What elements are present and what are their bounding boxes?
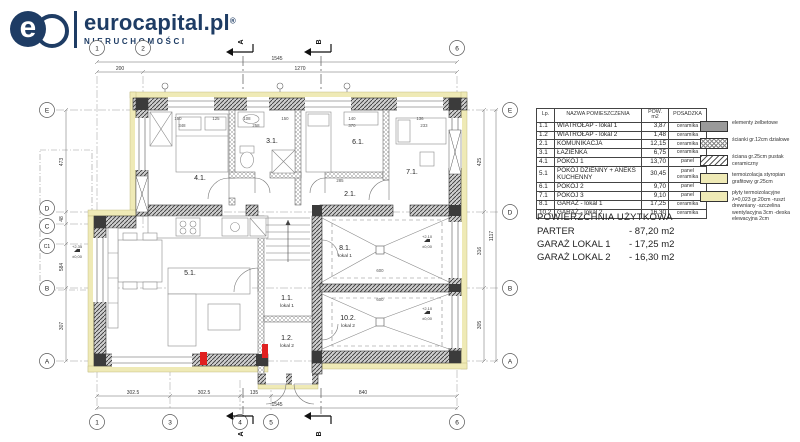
svg-text:1545: 1545 [271,402,282,408]
room-schedule-table: Lp. NAZWA POMIESZCZENIA POW. m2 POSADZKA… [536,108,707,219]
area-summary: POWIERZCHNIA UŻYTKOWA PARTER - 87,20 m2 … [537,212,737,265]
table-row: 2.1 KOMUNIKACJA 12,15 ceramika [537,140,707,149]
svg-text:473: 473 [59,158,65,167]
room-sub-1-2: lokal 2 [280,343,294,349]
svg-text:140: 140 [348,116,356,121]
table-row: 5.1 POKÓJ DZIENNY + ANEKS KUCHENNY 30,45… [537,167,707,183]
svg-text:A: A [238,431,245,436]
svg-text:±0,00: ±0,00 [72,254,83,259]
svg-text:+2,35: +2,35 [72,244,83,249]
room-label-5-1: 5.1. [184,270,196,277]
svg-text:1: 1 [95,420,99,427]
svg-text:1545: 1545 [271,56,282,62]
legend-item: elementy żelbetowe [700,120,798,132]
table-row: 1.1 WIATROŁAP - lokal 1 3,87 ceramika [537,122,707,131]
room-label-10-2: 10.2. [340,315,356,322]
table-row: 8.1 GARAŻ - lokal 1 17,25 ceramika [537,200,707,209]
svg-text:±0,00: ±0,00 [422,316,433,321]
svg-text:425: 425 [477,158,483,167]
svg-text:200: 200 [116,66,125,72]
table-row: 3.1 ŁAZIENKA 6,75 ceramika [537,149,707,158]
svg-text:150: 150 [174,116,182,121]
col-header-lp: Lp. [537,109,555,123]
svg-text:±0,00: ±0,00 [422,244,433,249]
legend-item: ściana gr.25cm pustak ceramiczny [700,154,798,167]
brick-wall-swatch-icon [700,155,728,166]
svg-text:B: B [316,39,323,44]
svg-text:B: B [508,286,512,293]
concrete-swatch-icon [700,121,728,132]
insulation-swatch-icon [700,173,728,184]
svg-text:348: 348 [178,123,186,128]
summary-line: GARAŻ LOKAL 2 - 16,30 m2 [537,252,737,263]
svg-text:1: 1 [95,46,99,53]
svg-text:D: D [45,206,50,213]
svg-text:1270: 1270 [294,66,305,72]
svg-text:125: 125 [212,116,220,121]
svg-text:316: 316 [477,247,483,256]
table-row: 4.1 POKÓJ 1 13,70 panel [537,158,707,167]
insulation-boards-swatch-icon [700,191,728,202]
svg-text:+2,10: +2,10 [422,234,433,239]
svg-text:2: 2 [141,46,145,53]
svg-text:6: 6 [455,46,459,53]
svg-text:136: 136 [416,116,424,121]
svg-text:C: C [45,224,50,231]
svg-text:305: 305 [477,321,483,330]
svg-text:B: B [316,431,323,436]
svg-text:A: A [508,359,513,366]
svg-text:1117: 1117 [489,231,495,242]
furniture [108,112,446,346]
room-label-7-1: 7.1. [406,169,418,176]
svg-text:600: 600 [376,268,384,273]
svg-text:285: 285 [336,178,344,183]
room-label-8-1: 8.1. [339,245,351,252]
vent-markers [162,83,350,92]
svg-text:4: 4 [238,420,242,427]
svg-text:840: 840 [359,390,368,396]
svg-text:6: 6 [455,420,459,427]
table-row: 1.2 WIATROŁAP - lokal 2 1,48 ceramika [537,131,707,140]
svg-text:302.5: 302.5 [198,390,211,396]
svg-text:584: 584 [59,263,65,272]
room-sub-8-1: lokal 1 [338,253,352,259]
room-label-6-1: 6.1. [352,139,364,146]
svg-text:C1: C1 [44,244,51,250]
svg-text:3: 3 [168,420,172,427]
svg-text:108: 108 [243,116,251,121]
table-header-row: Lp. NAZWA POMIESZCZENIA POW. m2 POSADZKA [537,109,707,123]
svg-text:+2,10: +2,10 [422,306,433,311]
svg-text:48: 48 [59,216,65,222]
svg-text:D: D [508,210,513,217]
svg-text:150: 150 [281,116,289,121]
floor-plan-drawing: 4.1. 3.1. 6.1. 7.1. 2.1. 5.1. 8.1. lokal… [0,0,535,442]
table-row: 6.1 POKÓJ 2 9,70 panel [537,183,707,192]
svg-text:B: B [45,286,49,293]
partition-swatch-icon [700,138,728,149]
svg-text:600: 600 [376,297,384,302]
room-label-4-1: 4.1. [194,175,206,182]
room-sub-10-2: lokal 2 [341,323,355,329]
room-label-2-1: 2.1. [344,191,356,198]
svg-text:370: 370 [348,123,356,128]
svg-text:A: A [238,39,245,44]
col-header-name: NAZWA POMIESZCZENIA [555,109,642,123]
page: e eurocapital.pl® NIERUCHOMOŚCI [0,0,800,442]
legend-item: termoizolacja styropian grafitowy gr.25c… [700,172,798,185]
room-label-1-1: 1.1. [281,295,293,302]
room-label-1-2: 1.2. [281,335,293,342]
col-header-area: POW. m2 [642,109,669,123]
summary-title: POWIERZCHNIA UŻYTKOWA [537,212,737,223]
legend-item: ścianki gr.12cm działowe [700,137,798,149]
room-sub-1-1: lokal 1 [280,303,294,309]
room-label-3-1: 3.1. [266,138,278,145]
svg-text:5: 5 [269,420,273,427]
svg-text:135: 135 [250,390,259,396]
summary-line: PARTER - 87,20 m2 [537,226,737,237]
staircase [266,218,310,262]
svg-text:E: E [508,108,513,115]
svg-text:233: 233 [420,123,428,128]
svg-text:258: 258 [252,123,260,128]
svg-text:E: E [45,108,50,115]
summary-line: GARAŻ LOKAL 1 - 17,25 m2 [537,239,737,250]
svg-text:A: A [45,359,50,366]
svg-text:307: 307 [59,322,65,331]
svg-text:302.5: 302.5 [127,390,140,396]
